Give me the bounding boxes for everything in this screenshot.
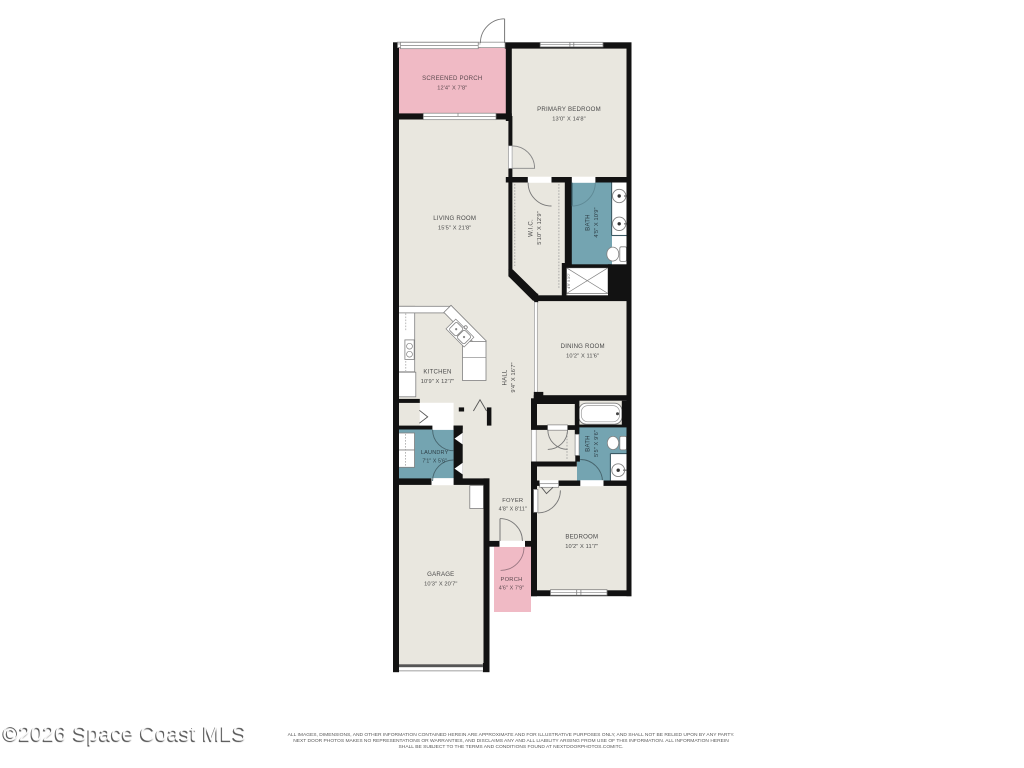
- svg-text:10'9" X 12'7": 10'9" X 12'7": [421, 379, 454, 385]
- svg-text:HALL: HALL: [501, 369, 508, 385]
- svg-text:4'8" X 8'11": 4'8" X 8'11": [499, 507, 527, 513]
- svg-text:SHALL BE SUBJECT TO THE TERMS: SHALL BE SUBJECT TO THE TERMS AND CONDIT…: [399, 744, 624, 750]
- svg-text:W.I.C.: W.I.C.: [527, 219, 534, 237]
- svg-text:5'10" X 12'9": 5'10" X 12'9": [537, 211, 543, 244]
- svg-text:BATH: BATH: [584, 435, 591, 452]
- svg-text:PRIMARY BEDROOM: PRIMARY BEDROOM: [537, 106, 601, 113]
- svg-text:12'4" X 7'8": 12'4" X 7'8": [437, 85, 467, 91]
- svg-text:9'4" X 16'7": 9'4" X 16'7": [511, 362, 517, 392]
- svg-text:FOYER: FOYER: [502, 498, 523, 504]
- svg-text:BEDROOM: BEDROOM: [565, 534, 598, 541]
- svg-text:4'5" X 10'9": 4'5" X 10'9": [594, 207, 600, 237]
- svg-text:PORCH: PORCH: [501, 577, 523, 583]
- svg-text:©2026 Space Coast MLS: ©2026 Space Coast MLS: [3, 723, 246, 746]
- svg-text:15'5" X 21'8": 15'5" X 21'8": [438, 225, 471, 231]
- svg-text:ALL IMAGES, DIMENSIONS, AND OT: ALL IMAGES, DIMENSIONS, AND OTHER INFORM…: [288, 732, 735, 738]
- svg-text:GARAGE: GARAGE: [427, 571, 454, 578]
- svg-text:7'1" X 5'6": 7'1" X 5'6": [422, 458, 447, 464]
- svg-text:NEXT DOOR PHOTOS MAKES NO REPR: NEXT DOOR PHOTOS MAKES NO REPRESENTATION…: [293, 738, 729, 744]
- svg-text:LAUNDRY: LAUNDRY: [421, 450, 449, 456]
- svg-text:13'0" X 14'8": 13'0" X 14'8": [552, 116, 585, 122]
- svg-text:KITCHEN: KITCHEN: [423, 369, 451, 376]
- svg-text:SCREENED PORCH: SCREENED PORCH: [422, 75, 482, 82]
- svg-text:10'3" X 20'7": 10'3" X 20'7": [424, 581, 457, 587]
- svg-text:BATH: BATH: [584, 214, 591, 231]
- svg-text:4'9" X 3'0": 4'9" X 3'0": [567, 273, 571, 289]
- svg-text:4'6" X 7'9": 4'6" X 7'9": [499, 586, 525, 592]
- svg-text:5'5" X 9'6": 5'5" X 9'6": [594, 430, 600, 457]
- svg-text:LIVING ROOM: LIVING ROOM: [433, 215, 476, 222]
- svg-text:DINING ROOM: DINING ROOM: [561, 343, 605, 350]
- svg-text:10'2" X 11'6": 10'2" X 11'6": [566, 353, 599, 359]
- svg-text:10'2" X 11'7": 10'2" X 11'7": [565, 544, 598, 550]
